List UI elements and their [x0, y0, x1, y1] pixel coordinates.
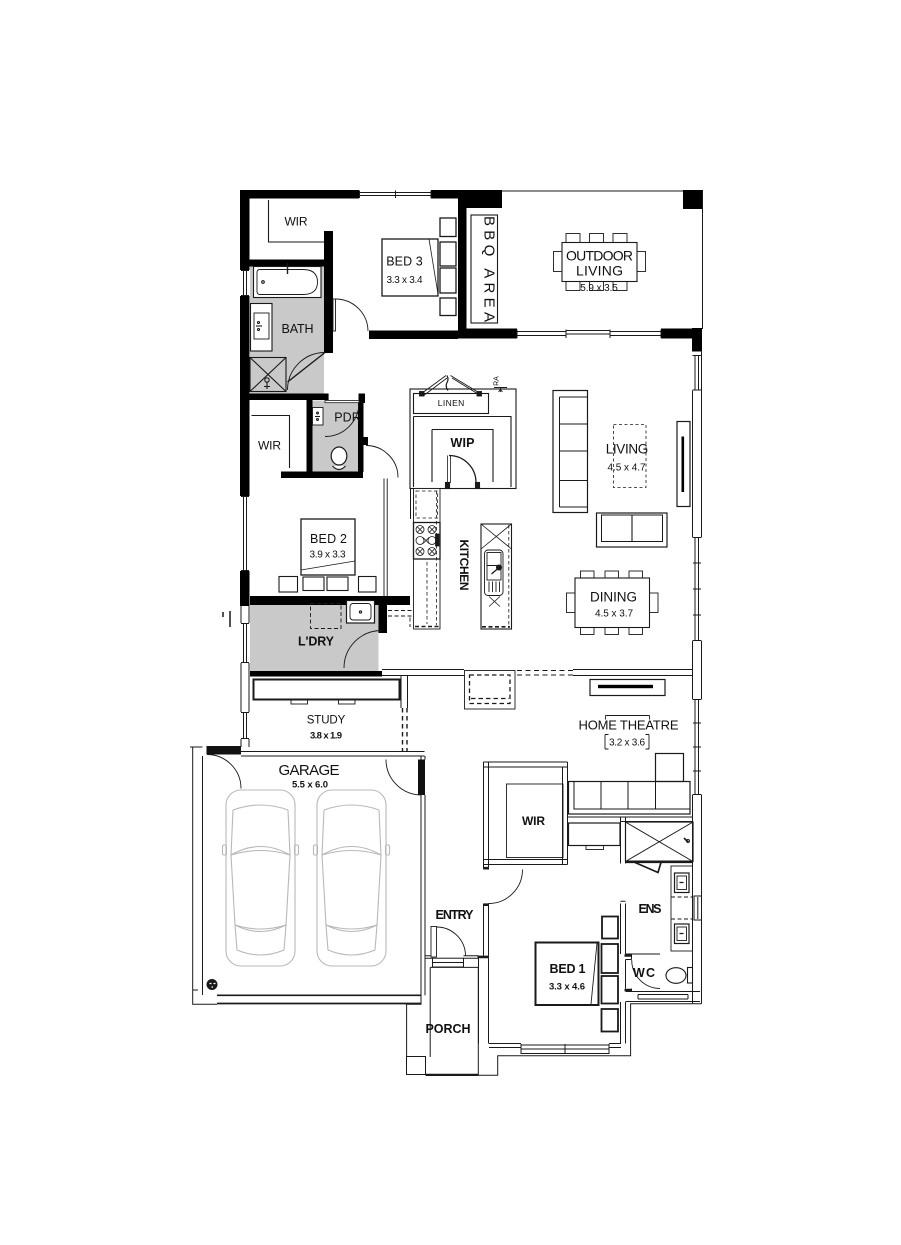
svg-text:GARAGE: GARAGE	[279, 762, 340, 779]
svg-text:HOME THEATRE: HOME THEATRE	[579, 718, 679, 733]
svg-text:L'DRY: L'DRY	[298, 635, 335, 649]
svg-text:PORCH: PORCH	[426, 1022, 471, 1036]
svg-text:LIVING: LIVING	[576, 263, 623, 279]
svg-text:5.9 x 3.5: 5.9 x 3.5	[580, 283, 618, 294]
svg-text:4.5 x 3.7: 4.5 x 3.7	[595, 609, 633, 620]
svg-text:5.5 x 6.0: 5.5 x 6.0	[292, 780, 328, 791]
svg-text:RA: RA	[494, 376, 501, 386]
svg-text:WIP: WIP	[451, 436, 475, 450]
svg-text:BBQ AREA: BBQ AREA	[481, 216, 498, 322]
svg-text:WIR: WIR	[258, 439, 281, 453]
svg-text:LIVING: LIVING	[606, 442, 649, 457]
svg-text:BED 2: BED 2	[310, 532, 347, 546]
svg-text:PDR: PDR	[334, 411, 361, 425]
svg-text:WC: WC	[633, 966, 655, 980]
svg-text:WIR: WIR	[522, 814, 545, 828]
svg-text:ENS: ENS	[639, 902, 662, 916]
svg-text:BED 3: BED 3	[386, 255, 423, 269]
svg-text:BATH: BATH	[282, 322, 314, 336]
svg-text:WIR: WIR	[285, 215, 308, 229]
svg-text:3.8 x 1.9: 3.8 x 1.9	[310, 731, 342, 742]
svg-text:OUTDOOR: OUTDOOR	[566, 248, 633, 264]
svg-text:DINING: DINING	[590, 590, 637, 605]
svg-text:3.2 x 3.6: 3.2 x 3.6	[609, 738, 645, 749]
svg-text:3.3 x 4.6: 3.3 x 4.6	[549, 982, 585, 993]
svg-text:BED 1: BED 1	[550, 962, 586, 976]
svg-text:3.9 x 3.3: 3.9 x 3.3	[310, 550, 346, 561]
svg-text:LINEN: LINEN	[438, 398, 465, 408]
svg-text:3.3 x 3.4: 3.3 x 3.4	[387, 275, 423, 286]
svg-text:KITCHEN: KITCHEN	[457, 540, 471, 591]
svg-text:ENTRY: ENTRY	[436, 908, 475, 922]
svg-text:STUDY: STUDY	[307, 715, 346, 727]
svg-text:4.5 x 4.7: 4.5 x 4.7	[608, 463, 646, 474]
